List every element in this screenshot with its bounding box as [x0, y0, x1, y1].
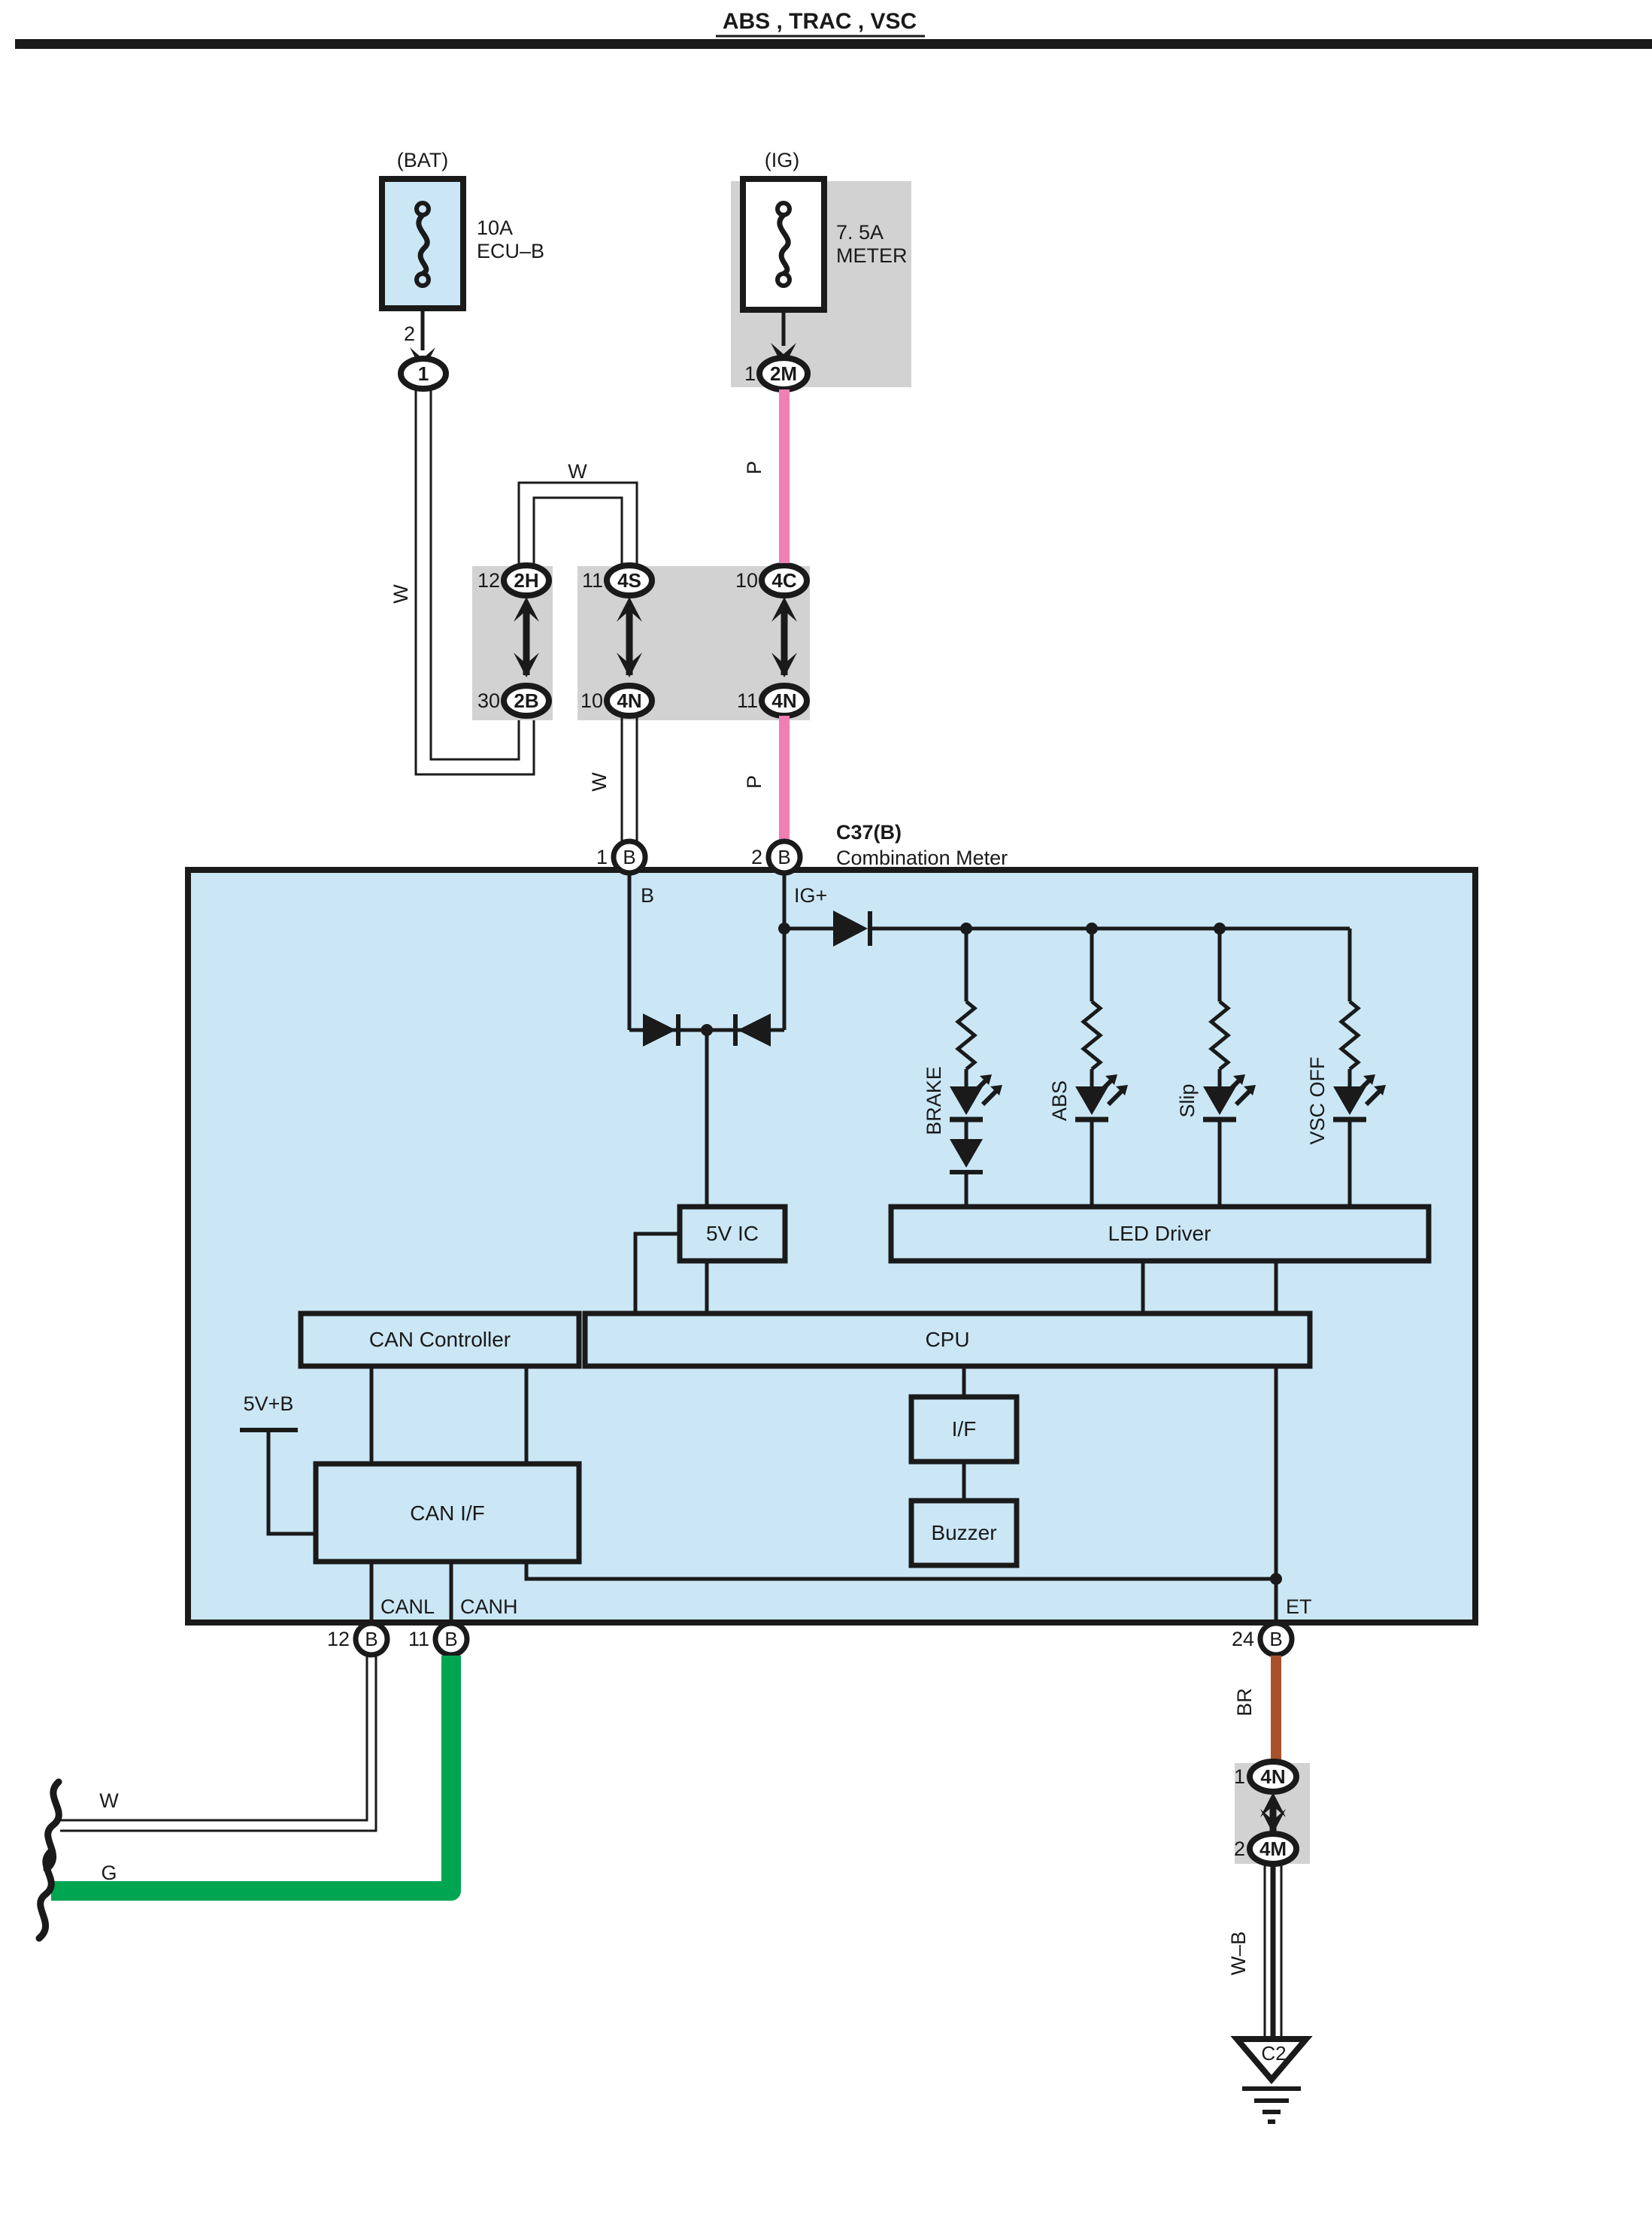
connector-4n2-pin: 11	[737, 689, 758, 712]
connector-4n1-pin: 10	[580, 689, 603, 712]
fuse-ig: (IG) 7. 5A METER 1 2M	[731, 149, 911, 389]
pin-canh-num: 11	[408, 1628, 429, 1650]
fuse-ig-box	[743, 179, 824, 310]
wire-label-wb: W–B	[1227, 1932, 1250, 1976]
block-cpu: CPU	[585, 1313, 1310, 1366]
fuse-bat-rating: 10A	[477, 217, 513, 239]
wire-label-w2: W	[568, 460, 587, 483]
wire-label-w1: W	[390, 584, 412, 604]
connector-2b-pin: 30	[477, 689, 500, 712]
pin-canh-id: B	[444, 1628, 457, 1650]
pin-et-num: 24	[1232, 1628, 1254, 1650]
connector-oval-label: 1	[418, 362, 429, 385]
fuse-bat-name: ECU–B	[477, 240, 544, 262]
pin-canl-id: B	[365, 1628, 377, 1650]
connector-4c-label: 4C	[771, 569, 796, 592]
fuse-ig-pin: 1	[744, 362, 756, 385]
block-can-controller-label: CAN Controller	[369, 1328, 511, 1351]
block-can-controller: CAN Controller	[301, 1313, 579, 1366]
label-5vb: 5V+B	[244, 1392, 294, 1415]
block-led-driver-label: LED Driver	[1108, 1222, 1211, 1245]
connector-4n2-label: 4N	[771, 689, 796, 712]
fuse-bat-pin: 2	[404, 323, 415, 345]
wire-wb: W–B	[1227, 1865, 1281, 2039]
wire-w-can: W	[47, 1656, 376, 1869]
junction-block-4nm: 4N 1 4M 2	[1234, 1762, 1310, 1864]
connector-2b-label: 2B	[514, 689, 538, 712]
connector-4s-label: 4S	[617, 569, 641, 592]
indicator-label-slip: Slip	[1176, 1083, 1199, 1117]
wire-label-p1: P	[743, 461, 765, 474]
fuse-bat-box	[382, 179, 463, 308]
meter-code: C37(B)	[836, 821, 902, 844]
connector-4s-pin: 11	[582, 569, 603, 592]
pin-b-id: B	[623, 846, 635, 868]
block-5v-ic-label: 5V IC	[706, 1222, 759, 1245]
label-canh: CANH	[460, 1595, 518, 1618]
connector-2h-label: 2H	[514, 569, 538, 592]
ground-c2: C2	[1237, 2039, 1306, 2122]
meter-bottom-pins: B 12 B 11 B 24	[327, 1623, 1292, 1655]
pin-et-id: B	[1269, 1628, 1282, 1650]
fuse-bat-tag: (BAT)	[397, 149, 449, 171]
wire-label-w-can: W	[99, 1789, 119, 1812]
wiring-diagram-page: ABS , TRAC , VSC (BAT) 10A ECU–B 2 1 W W…	[0, 0, 1652, 2233]
wire-w-mid: W	[588, 716, 637, 843]
block-buzzer-label: Buzzer	[931, 1521, 996, 1544]
wire-label-w3: W	[588, 772, 611, 792]
wire-br: BR	[1233, 1656, 1276, 1765]
pin-ig-label: IG+	[794, 884, 827, 907]
fuse-ig-name: METER	[836, 244, 908, 267]
label-et: ET	[1286, 1595, 1312, 1618]
connector-4n3-pin: 1	[1234, 1765, 1245, 1788]
connector-4c-pin: 10	[735, 569, 758, 592]
junction-block-4: 4S 11 4N 10 4C 10 4N 11	[577, 565, 810, 720]
connector-2m-label: 2M	[770, 362, 797, 385]
indicator-label-brake: BRAKE	[923, 1066, 945, 1135]
wire-w-jumper: W	[519, 460, 637, 566]
label-canl: CANL	[380, 1595, 435, 1618]
pin-b-num: 1	[596, 846, 608, 868]
combination-meter: C37(B) Combination Meter B 1 B 2 B IG+	[188, 821, 1475, 1622]
connector-4m-pin: 2	[1234, 1838, 1245, 1860]
connector-4n1-label: 4N	[617, 689, 641, 712]
block-if-label: I/F	[952, 1417, 977, 1441]
fuse-ig-rating: 7. 5A	[836, 221, 884, 244]
wire-label-br: BR	[1233, 1688, 1256, 1716]
wire-label-g-can: G	[101, 1862, 117, 1884]
page-title: ABS , TRAC , VSC	[723, 9, 917, 34]
indicator-label-abs: ABS	[1048, 1080, 1071, 1121]
pin-ig-num: 2	[751, 846, 762, 868]
fuse-bat: (BAT) 10A ECU–B 2 1	[382, 149, 544, 389]
junction-block-2: 2H 12 2B 30	[472, 565, 553, 720]
ground-icon	[1242, 2089, 1301, 2122]
header-bar	[15, 39, 1652, 49]
block-cpu-label: CPU	[925, 1328, 969, 1351]
pin-b-label: B	[641, 884, 654, 907]
block-can-if-label: CAN I/F	[410, 1501, 485, 1525]
wiring-diagram: ABS , TRAC , VSC (BAT) 10A ECU–B 2 1 W W…	[0, 0, 1652, 2233]
ground-c2-label: C2	[1261, 2042, 1286, 2065]
connector-4n3-label: 4N	[1260, 1765, 1285, 1788]
header: ABS , TRAC , VSC	[15, 9, 1652, 49]
wire-label-p2: P	[743, 775, 765, 789]
pin-ig-id: B	[778, 846, 790, 868]
fuse-ig-tag: (IG)	[765, 149, 800, 171]
connector-4m-label: 4M	[1259, 1838, 1287, 1860]
connector-2h-pin: 12	[477, 569, 500, 592]
meter-name: Combination Meter	[836, 847, 1008, 869]
pin-canl-num: 12	[327, 1628, 350, 1650]
indicator-label-vsc-off: VSC OFF	[1306, 1056, 1329, 1144]
